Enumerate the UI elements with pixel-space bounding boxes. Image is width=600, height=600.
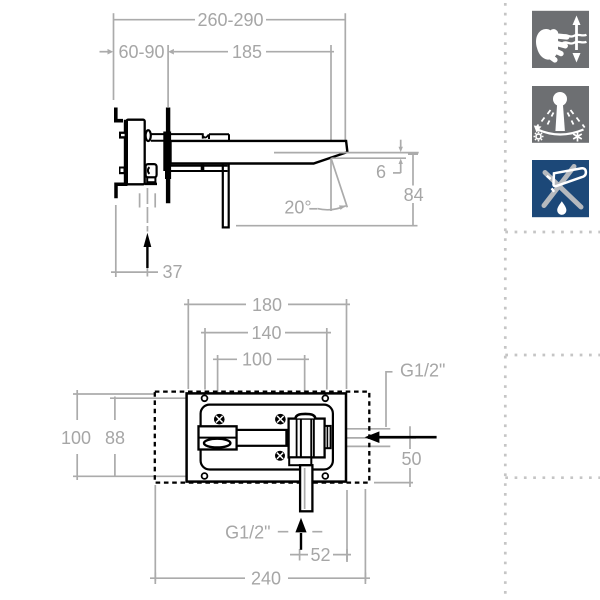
svg-text:6: 6	[376, 162, 386, 182]
svg-text:88: 88	[105, 428, 125, 448]
svg-text:180: 180	[252, 295, 282, 315]
svg-text:260-290: 260-290	[197, 10, 263, 30]
svg-text:140: 140	[251, 323, 281, 343]
svg-text:84: 84	[404, 185, 424, 205]
svg-text:G1/2": G1/2"	[225, 523, 270, 543]
svg-text:37: 37	[162, 262, 182, 282]
svg-text:50: 50	[401, 449, 421, 469]
svg-text:240: 240	[251, 569, 281, 589]
svg-text:185: 185	[232, 42, 262, 62]
svg-text:100: 100	[61, 428, 91, 448]
svg-text:60-90: 60-90	[118, 42, 164, 62]
svg-text:52: 52	[310, 545, 330, 565]
svg-text:G1/2": G1/2"	[400, 361, 445, 381]
svg-text:20°: 20°	[284, 198, 311, 218]
svg-text:100: 100	[242, 350, 272, 370]
